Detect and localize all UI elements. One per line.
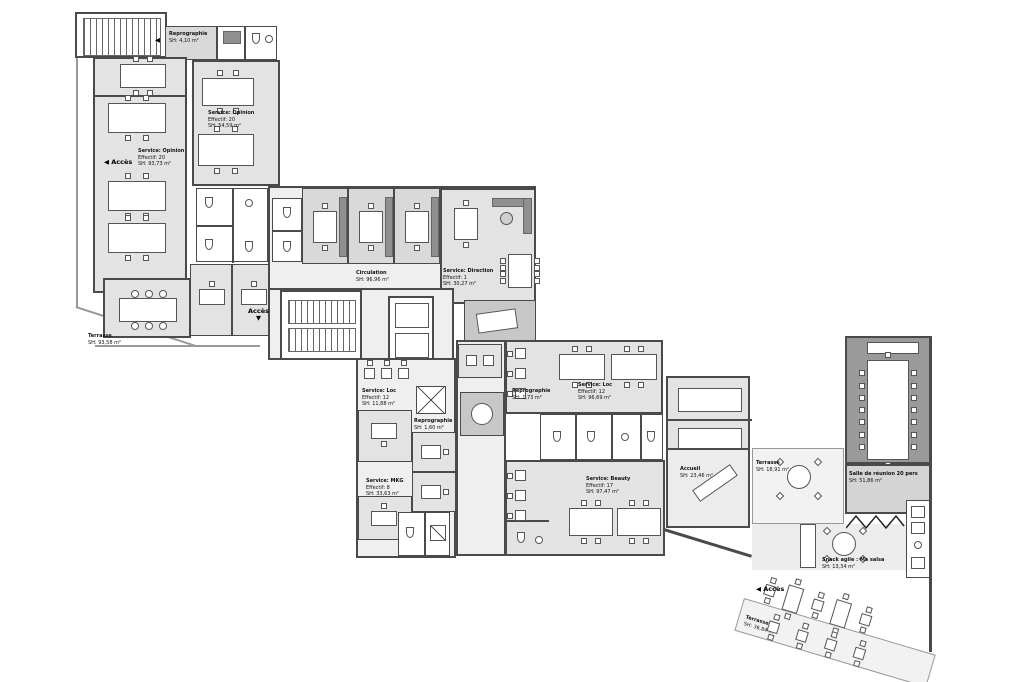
chair-icon xyxy=(811,612,818,619)
chair-icon xyxy=(795,642,802,649)
chair-icon xyxy=(414,245,420,251)
access-label: Accès xyxy=(763,585,784,593)
table xyxy=(508,254,532,288)
label-line: SH: 96,69 m² xyxy=(578,395,612,402)
chair-icon xyxy=(322,245,328,251)
chair-icon xyxy=(572,382,578,388)
chair-icon xyxy=(143,215,149,221)
access-arrow-center: Accès▼ xyxy=(248,308,269,321)
chair-icon xyxy=(125,255,131,261)
chair-icon xyxy=(581,500,587,506)
chair-icon xyxy=(443,449,449,455)
label-line: SH: 97,47 m² xyxy=(586,489,630,496)
stairs-icon xyxy=(288,328,356,352)
table xyxy=(569,508,613,536)
label-line: Service: Opinion xyxy=(138,148,184,155)
chair-icon xyxy=(125,135,131,141)
chair-icon xyxy=(911,370,917,376)
chair-icon xyxy=(251,281,257,287)
label-line: Service: Loc xyxy=(362,388,396,395)
table xyxy=(202,78,254,106)
chair-icon xyxy=(859,432,865,438)
cabinet xyxy=(339,197,347,257)
chair-icon xyxy=(586,346,592,352)
chair-icon xyxy=(853,660,860,667)
room-salle-reunion xyxy=(845,336,931,464)
chair-icon xyxy=(125,173,131,179)
room-wc-south xyxy=(398,512,450,556)
chair-icon xyxy=(401,360,407,366)
desk xyxy=(371,423,397,439)
toilet-icon xyxy=(406,527,414,538)
room-accueil xyxy=(666,448,750,528)
table xyxy=(483,355,494,366)
table xyxy=(108,181,166,211)
chair-icon xyxy=(159,322,167,330)
wall xyxy=(244,27,246,61)
chair-icon xyxy=(534,278,540,284)
chair-icon xyxy=(159,290,167,298)
room-label-loc-small: Service: Loc Effectif: 12 SH: 11,88 m² xyxy=(362,388,396,408)
chair-icon xyxy=(859,444,865,450)
chair-icon xyxy=(463,200,469,206)
chair-icon xyxy=(143,95,149,101)
table xyxy=(795,629,809,643)
sink-icon xyxy=(914,541,922,549)
wall xyxy=(197,225,232,227)
label-line: SH: 54,59 m² xyxy=(208,123,254,130)
wall xyxy=(273,230,303,232)
room-label-reprographie-core: Reprographie SH: 1,60 m² xyxy=(414,418,452,431)
label-line: SH: 18,91 m² xyxy=(756,467,789,474)
chair-icon xyxy=(500,278,506,284)
chair-icon xyxy=(507,513,513,519)
desk xyxy=(371,511,397,526)
toilet-icon xyxy=(245,241,253,252)
label-line: SH: 11,88 m² xyxy=(362,401,396,408)
chair-icon xyxy=(381,503,387,509)
chair-icon xyxy=(145,322,153,330)
chair-icon xyxy=(384,360,390,366)
chair-icon xyxy=(443,489,449,495)
label-line: Service: Opinion xyxy=(208,110,254,117)
table xyxy=(515,348,526,359)
chair-icon xyxy=(801,622,808,629)
table xyxy=(678,388,742,412)
office-small-a xyxy=(190,264,232,336)
chair-icon xyxy=(773,613,780,620)
table xyxy=(859,613,873,627)
wall xyxy=(507,520,549,522)
label-line: Snack agile : Ma salsa xyxy=(822,557,884,564)
room-wc-mid xyxy=(272,198,302,262)
coffee-table xyxy=(500,212,513,225)
chair-icon xyxy=(500,271,506,277)
access-arrow-left-wing: ◀ Accès xyxy=(104,158,132,166)
toilet-icon xyxy=(283,207,291,218)
room-label-terrasse-left: Terrasse SH: 93,58 m² xyxy=(88,333,121,346)
room-label-salle-reunion: Salle de réunion 20 pers SH: 51,86 m² xyxy=(849,471,918,484)
toilet-icon xyxy=(517,532,525,543)
chair-icon xyxy=(859,407,865,413)
arrow-icon: ◀ xyxy=(155,36,160,44)
room-label-opinion-left: Service: Opinion Effectif: 20 SH: 93,73 … xyxy=(138,148,184,168)
chair-icon xyxy=(507,351,513,357)
cabinet xyxy=(223,31,241,44)
table xyxy=(515,490,526,501)
label-line: Service: MKG xyxy=(366,478,403,485)
room-loc xyxy=(505,340,663,414)
chair-icon xyxy=(643,538,649,544)
toilet-icon xyxy=(553,431,561,442)
chair-icon xyxy=(133,90,139,96)
island-table xyxy=(832,532,856,556)
room-below-direction xyxy=(464,300,536,344)
shaft-icon xyxy=(416,386,446,414)
stairs-icon xyxy=(83,18,161,56)
wall xyxy=(611,415,613,461)
room-wc-top xyxy=(217,26,277,60)
chair-icon xyxy=(911,419,917,425)
chair-icon xyxy=(859,640,866,647)
chair-icon xyxy=(624,382,630,388)
office-south-right-2 xyxy=(412,472,456,512)
chair-icon xyxy=(859,626,866,633)
room-mid-small xyxy=(458,344,502,378)
room-opinion-left xyxy=(93,57,187,293)
chair-icon xyxy=(629,500,635,506)
label-line: SH: 96,96 m² xyxy=(356,277,389,284)
chair-icon xyxy=(629,538,635,544)
label-line: SH: 93,73 m² xyxy=(138,161,184,168)
label-line: SH: 33,63 m² xyxy=(366,491,403,498)
label-line: Salle de réunion 20 pers xyxy=(849,471,918,478)
conference-table xyxy=(867,360,909,460)
chair-icon xyxy=(767,634,774,641)
desk xyxy=(421,485,441,499)
chair-icon xyxy=(145,290,153,298)
table xyxy=(611,354,657,380)
access-arrow-bottom: ◀ Accès xyxy=(756,585,784,593)
chair-icon xyxy=(143,135,149,141)
access-label: Accès xyxy=(111,158,132,166)
chair-icon xyxy=(911,444,917,450)
room-label-mkg: Service: MKG Effectif: 8 SH: 33,63 m² xyxy=(366,478,403,498)
room-label-loc: Service: Loc Effectif: 12 SH: 96,69 m² xyxy=(578,382,612,402)
table xyxy=(559,354,605,380)
cafe-seating xyxy=(748,578,921,682)
chair-icon xyxy=(233,70,239,76)
arrow-icon: ◀ xyxy=(756,585,761,593)
cabinet xyxy=(431,197,439,257)
office-south-left xyxy=(358,410,412,462)
chair-icon xyxy=(911,395,917,401)
toilet-icon xyxy=(587,431,595,442)
table xyxy=(381,368,392,379)
chair-icon xyxy=(859,395,865,401)
elevator-block xyxy=(388,296,434,362)
table xyxy=(398,368,409,379)
chair-icon xyxy=(784,613,791,620)
wall xyxy=(575,415,577,461)
table xyxy=(364,368,375,379)
chair-icon xyxy=(763,597,770,604)
chair-icon xyxy=(865,606,872,613)
room-label-accueil: Accueil SH: 23,46 m² xyxy=(680,466,713,479)
wall xyxy=(424,513,426,557)
room-beauty xyxy=(505,460,665,556)
chair-icon xyxy=(581,538,587,544)
room-label-reprographie-right: Reprographie SH: 1,73 m² xyxy=(512,388,550,401)
chair-icon xyxy=(507,473,513,479)
room-round-table xyxy=(460,392,504,436)
office-south-right-1 xyxy=(412,432,456,472)
chair-icon xyxy=(368,203,374,209)
chair-icon xyxy=(911,407,917,413)
table xyxy=(824,638,838,652)
appliance-icon xyxy=(911,506,925,518)
table xyxy=(781,584,804,614)
appliance-icon xyxy=(911,522,925,534)
table xyxy=(108,103,166,133)
table xyxy=(829,599,852,629)
elevator-car-icon xyxy=(395,303,429,328)
chair-icon xyxy=(643,500,649,506)
stairwell-core xyxy=(280,290,362,360)
chair-icon xyxy=(217,70,223,76)
toilet-icon xyxy=(647,431,655,442)
chair-icon xyxy=(143,173,149,179)
chair-icon xyxy=(824,651,831,658)
label-line: SH: 93,58 m² xyxy=(88,340,121,347)
buffet xyxy=(867,342,919,354)
chair-icon xyxy=(534,265,540,271)
wall xyxy=(668,419,752,421)
office-band-3 xyxy=(394,188,440,264)
stairs-icon xyxy=(288,300,356,324)
chair-icon xyxy=(125,95,131,101)
chair-icon xyxy=(232,168,238,174)
round-table xyxy=(787,465,811,489)
sofa xyxy=(523,198,532,234)
room-wc-left-wing xyxy=(196,188,268,262)
chair-icon xyxy=(500,258,506,264)
office-band-2 xyxy=(348,188,394,264)
table xyxy=(766,620,780,634)
zigzag-wall xyxy=(846,514,906,534)
chair-icon xyxy=(842,593,849,600)
table xyxy=(120,64,166,88)
chair-icon xyxy=(214,168,220,174)
chair-icon xyxy=(595,538,601,544)
shower-icon xyxy=(430,525,446,541)
room-label-snack: Snack agile : Ma salsa SH: 13,34 m² xyxy=(822,557,884,570)
meeting-room-left xyxy=(103,278,191,338)
room-label-reprographie-top: Reprographie SH: 4,10 m² xyxy=(169,31,207,44)
wall xyxy=(640,415,642,461)
chair-icon xyxy=(776,492,784,500)
chair-icon xyxy=(859,383,865,389)
kitchen-strip xyxy=(906,500,930,578)
label-line: Service: Beauty xyxy=(586,476,630,483)
round-table xyxy=(471,403,493,425)
table xyxy=(617,508,661,536)
chair-icon xyxy=(911,383,917,389)
bar-counter xyxy=(800,524,816,568)
chair-icon xyxy=(624,346,630,352)
label-line: SH: 51,86 m² xyxy=(849,478,918,485)
chair-icon xyxy=(507,493,513,499)
label-line: Reprographie xyxy=(512,388,550,395)
desk xyxy=(241,289,267,305)
chair-icon xyxy=(769,577,776,584)
table xyxy=(108,223,166,253)
sink-icon xyxy=(621,433,629,441)
label-line: SH: 30,27 m² xyxy=(443,281,493,288)
chair-icon xyxy=(463,242,469,248)
label-line: Circulation xyxy=(356,270,389,277)
chair-icon xyxy=(507,371,513,377)
office-band-1 xyxy=(302,188,348,264)
label-line: SH: 1,73 m² xyxy=(512,395,550,402)
sink-icon xyxy=(535,536,543,544)
desk xyxy=(476,308,518,333)
sink-icon xyxy=(245,199,253,207)
toilet-icon xyxy=(205,197,213,208)
cabinet xyxy=(385,197,393,257)
room-label-direction: Service: Direction Effectif: 1 SH: 30,27… xyxy=(443,268,493,288)
chair-icon xyxy=(638,382,644,388)
label-line: SH: 23,46 m² xyxy=(680,473,713,480)
label-line: Reprographie xyxy=(169,31,207,38)
label-line: SH: 4,10 m² xyxy=(169,38,207,45)
wall xyxy=(232,189,234,263)
chair-icon xyxy=(572,346,578,352)
room-label-opinion-right: Service: Opinion Effectif: 20 SH: 54,59 … xyxy=(208,110,254,130)
room-label-beauty: Service: Beauty Effectif: 17 SH: 97,47 m… xyxy=(586,476,630,496)
table xyxy=(313,211,337,243)
appliance-icon xyxy=(911,557,925,569)
chair-icon xyxy=(381,441,387,447)
terrace-boundary-line xyxy=(76,40,78,308)
chair-icon xyxy=(368,245,374,251)
chair-icon xyxy=(367,360,373,366)
elevator-car-icon xyxy=(395,333,429,358)
chair-icon xyxy=(131,322,139,330)
chair-icon xyxy=(859,419,865,425)
chair-icon xyxy=(500,265,506,271)
table xyxy=(811,598,825,612)
chair-icon xyxy=(638,346,644,352)
table xyxy=(454,208,478,240)
chair-icon xyxy=(595,500,601,506)
wall xyxy=(93,95,187,97)
chair-icon xyxy=(859,370,865,376)
toilet-icon xyxy=(283,241,291,252)
chair-icon xyxy=(125,215,131,221)
chair-icon xyxy=(143,255,149,261)
toilet-icon xyxy=(252,33,260,44)
chair-icon xyxy=(322,203,328,209)
table xyxy=(466,355,477,366)
label-line: Reprographie xyxy=(414,418,452,425)
table xyxy=(359,211,383,243)
table xyxy=(119,298,177,322)
floor-plan: ◀ Reprographie SH: 4,10 m² Service: Opin… xyxy=(0,0,1024,682)
room-label-circulation: Circulation SH: 96,96 m² xyxy=(356,270,389,283)
chair-icon xyxy=(817,591,824,598)
stairwell-top-left xyxy=(75,12,167,58)
label-line: SH: 1,60 m² xyxy=(414,425,452,432)
chair-icon xyxy=(133,56,139,62)
chair-icon xyxy=(885,352,891,358)
label-line: SH: 13,34 m² xyxy=(822,564,884,571)
chair-icon xyxy=(814,492,822,500)
chair-icon xyxy=(911,432,917,438)
desk xyxy=(199,289,225,305)
chair-icon xyxy=(830,631,837,638)
table xyxy=(515,470,526,481)
label-line: Service: Loc xyxy=(578,382,612,389)
chair-icon xyxy=(794,578,801,585)
table xyxy=(405,211,429,243)
table xyxy=(515,510,526,521)
chair-icon xyxy=(414,203,420,209)
arrow-icon: ◀ xyxy=(104,158,109,166)
table xyxy=(198,134,254,166)
room-wc-right xyxy=(540,414,663,460)
label-line: Service: Direction xyxy=(443,268,493,275)
table xyxy=(515,368,526,379)
chair-icon xyxy=(534,271,540,277)
chair-icon xyxy=(534,258,540,264)
chair-icon xyxy=(131,290,139,298)
arrow-icon: ▼ xyxy=(256,314,261,322)
chair-icon xyxy=(209,281,215,287)
desk xyxy=(421,445,441,459)
toilet-icon xyxy=(205,239,213,250)
chair-icon xyxy=(147,56,153,62)
chair-icon xyxy=(814,458,822,466)
wall-diagonal xyxy=(663,528,752,557)
room-label-terrasse-mid: Terrasse SH: 18,91 m² xyxy=(756,460,789,473)
table xyxy=(853,647,867,661)
sink-icon xyxy=(265,35,273,43)
